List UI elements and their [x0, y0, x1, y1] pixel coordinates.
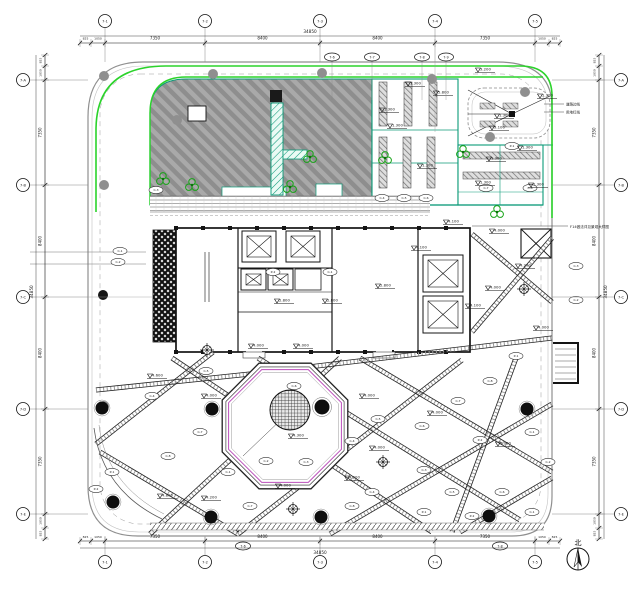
axis-bubble-label: 7-C [618, 295, 625, 299]
spot-level-value: 4.100 [448, 219, 459, 224]
dim-value: 825 [593, 531, 597, 537]
axis-bubble-label: 7-3 [317, 19, 323, 23]
gray-dot [99, 71, 109, 81]
spot-level-value: 4.000 [280, 483, 291, 488]
column-tick [228, 226, 232, 230]
tree-solid [96, 402, 109, 415]
dim-value: 1050 [593, 69, 597, 77]
axis-bubble-label: 7-D [618, 407, 625, 411]
column-tick [444, 226, 448, 230]
plant-tag-code: C-5 [401, 196, 406, 200]
dim-value: 1050 [593, 517, 597, 525]
spot-level-value: 1.300 [410, 81, 421, 86]
spot-level-value: 4.000 [500, 441, 511, 446]
plant-room-block [372, 79, 458, 205]
spot-level-value: 4.000 [374, 445, 385, 450]
tree-solid [206, 403, 219, 416]
spot-level-value: 4.100 [470, 303, 481, 308]
column-tick [282, 226, 286, 230]
dim-value: 825 [39, 58, 43, 64]
plant-tag-code: C-8 [487, 379, 492, 383]
spot-level-value: 2.800 [279, 298, 290, 303]
ramp-bar [480, 103, 495, 109]
plant-tag-code: C-7 [483, 186, 488, 190]
column-tick [201, 226, 205, 230]
dim-value: 7350 [150, 36, 161, 41]
site-plan-drawing: C-1C-2C-3C-4C-5C-6C-7C-8P-1P-2C-1C-2C-3C… [0, 0, 639, 594]
spot-level-value: 3.200 [480, 67, 491, 72]
north-arrow: 北 [567, 539, 589, 570]
plant-tag-code: P-1 [110, 470, 115, 474]
tree-solid [315, 511, 328, 524]
plant-tag-code: C-4 [379, 196, 384, 200]
louver-bar [379, 82, 387, 126]
plant-tag-code: P-2 [470, 514, 475, 518]
plant-tag-code: C-4 [369, 490, 374, 494]
column-tick [228, 350, 232, 354]
plant-tag-code: C-5 [203, 369, 208, 373]
louver-bar [403, 137, 411, 188]
shrub-center [289, 186, 291, 188]
dim-total-top: 34850 [303, 29, 317, 34]
leader-note-text: F14做法详见景观大样图 [570, 224, 609, 229]
gray-dot [485, 132, 495, 142]
sub-axis-label: 7-6 [329, 55, 334, 59]
spot-level-value: 3.100 [494, 125, 505, 130]
escape-stair-niche [553, 343, 578, 383]
tree-solid [107, 496, 120, 509]
dim-value: 1050 [94, 535, 102, 539]
dim-value: 1050 [538, 535, 546, 539]
crosswalk-strip [463, 172, 540, 179]
axis-bubble-label: 7-A [20, 78, 27, 82]
dim-value: 7350 [480, 36, 491, 41]
sub-axis-label: 7-9 [443, 55, 448, 59]
column-tick [255, 226, 259, 230]
plant-tag-code: C-1 [529, 510, 534, 514]
dim-value: 8400 [592, 347, 597, 358]
margin-note-2: 用地红线 [566, 110, 580, 115]
spot-level-value: 1.300 [392, 123, 403, 128]
spot-level-value: 2.800 [327, 298, 338, 303]
plant-tag-code: C-3 [421, 468, 426, 472]
dim-value: 1050 [94, 37, 102, 41]
spot-level-value: 2.800 [380, 283, 391, 288]
dim-value: 1050 [39, 517, 43, 525]
spot-level-value: 4.000 [298, 343, 309, 348]
shrub-center [462, 151, 464, 153]
axis-bubble-label: 7-A [618, 78, 625, 82]
column-tick [417, 226, 421, 230]
louver-bar [404, 82, 412, 126]
plant-tag-code: C-4 [349, 439, 354, 443]
spot-level-value: 4.000 [206, 393, 217, 398]
tree-solid [205, 511, 218, 524]
feature-tree-grate [270, 390, 310, 430]
plant-tag-code: C-8 [349, 504, 354, 508]
axis-bubble-label: 7-B [20, 183, 26, 187]
axis-bubble-label: 7-B [618, 183, 624, 187]
dim-value: 8400 [372, 534, 383, 539]
dim-total-right: 34850 [603, 285, 608, 299]
plant-tag-code: C-6 [499, 490, 504, 494]
tree-solid [315, 400, 330, 415]
spot-level-value: 4.000 [432, 410, 443, 415]
stair-hatch-band [153, 230, 176, 342]
plant-tag-code: C-6 [291, 384, 296, 388]
margin-note-1: 道路边线 [566, 102, 580, 107]
dim-value: 1050 [39, 69, 43, 77]
plant-tag-code: C-2 [545, 460, 550, 464]
spot-level-value: 4.200 [349, 475, 360, 480]
core-room [295, 269, 321, 290]
column-tick [336, 226, 340, 230]
spot-level-value: 4.000 [364, 393, 375, 398]
dim-total-left: 34850 [29, 285, 34, 299]
dim-total-bottom: 34850 [313, 550, 327, 555]
gray-dot [172, 115, 182, 125]
plant-tag-code: C-1 [117, 249, 122, 253]
plant-tag-code: P-2 [94, 487, 99, 491]
column-tick [309, 350, 313, 354]
gray-dot [317, 68, 327, 78]
axis-bubble-label: 7-5 [532, 560, 538, 564]
spot-level-value: 4.000 [490, 285, 501, 290]
link-stub-hatch [283, 150, 307, 159]
spot-level-value: 4.200 [520, 263, 531, 268]
plant-tag-code: P-1 [514, 354, 519, 358]
dim-value: 825 [552, 37, 558, 41]
plant-tag-code: C-3 [573, 264, 578, 268]
plant-tag-code: C-5 [449, 490, 454, 494]
spot-level-value: 1.300 [522, 145, 533, 150]
site-plan-canvas: C-1C-2C-3C-4C-5C-6C-7C-8P-1P-2C-1C-2C-3C… [0, 0, 639, 594]
louver-bar [429, 82, 437, 126]
spot-level-value: 1.300 [480, 180, 491, 185]
plant-tag-code: C-2 [263, 459, 268, 463]
entry-steps [243, 352, 265, 358]
dim-value: 825 [39, 531, 43, 537]
tree-solid [483, 510, 496, 523]
shrub-center [191, 184, 193, 186]
spot-level-value: 4.000 [494, 228, 505, 233]
plant-tag-code: C-6 [423, 196, 428, 200]
axis-bubble-label: 7-2 [202, 560, 208, 564]
column-tick [174, 226, 178, 230]
spot-level-value: 1.300 [542, 93, 553, 98]
plant-tag-code: P-1 [510, 144, 515, 148]
black-dot [98, 290, 108, 300]
axis-bubble-label: 7-D [20, 407, 27, 411]
axis-bubble-label: 7-E [618, 512, 625, 516]
tree-solid [521, 403, 534, 416]
plant-tag-code: C-2 [573, 298, 578, 302]
plant-tag-code: C-6 [419, 424, 424, 428]
column-tick [282, 350, 286, 354]
plant-tag-code: C-2 [115, 260, 120, 264]
dim-value: 1050 [538, 37, 546, 41]
dim-value: 825 [593, 58, 597, 64]
dim-value: 7350 [150, 534, 161, 539]
sub-axis-label: 7-7 [369, 55, 374, 59]
gray-dot [208, 69, 218, 79]
right-room-block [458, 145, 543, 205]
gray-dot [427, 74, 437, 84]
column-tick [390, 226, 394, 230]
spot-level-value: 4.000 [538, 325, 549, 330]
plant-tag-code: C-7 [247, 504, 252, 508]
spot-level-value: 4.200 [206, 495, 217, 500]
spot-level-value: 1.300 [499, 113, 510, 118]
shaft-solid [270, 90, 282, 102]
link-bridge-hatch [271, 103, 283, 195]
spot-level-value: 1.300 [384, 107, 395, 112]
axis-bubble-label: 7-2 [202, 19, 208, 23]
spot-level-value: 4.100 [416, 245, 427, 250]
north-label: 北 [575, 539, 582, 547]
axis-bubble-label: 7-3 [317, 560, 323, 564]
plant-tag-code: C-4 [149, 394, 154, 398]
column-tick [363, 350, 367, 354]
column-solid [509, 111, 515, 117]
gray-dot [99, 180, 109, 190]
plant-tag-code: P-1 [422, 510, 427, 514]
dim-value: 7350 [592, 456, 597, 467]
plant-tag-code: C-3 [153, 188, 158, 192]
column-tick [363, 226, 367, 230]
axis-bubble-label: 7-1 [102, 560, 108, 564]
shrub-center [384, 157, 386, 159]
gray-dot [520, 87, 530, 97]
plant-tag-code: C-1 [529, 430, 534, 434]
spot-level-value: 5.800 [438, 90, 449, 95]
spot-level-value: 1.300 [491, 156, 502, 161]
shrub-center [162, 178, 164, 180]
dim-value: 7350 [38, 456, 43, 467]
plant-tag-code: C-7 [455, 399, 460, 403]
plant-tag-code: P-2 [271, 270, 276, 274]
dim-value: 7350 [480, 534, 491, 539]
column-tick [309, 226, 313, 230]
spot-level-value: 4.300 [293, 433, 304, 438]
dim-value: 8400 [38, 235, 43, 246]
shrub-center [309, 156, 311, 158]
spot-level-value: 4.800 [162, 493, 173, 498]
dim-value: 825 [552, 535, 558, 539]
plant-tag-code: C-1 [225, 470, 230, 474]
spot-level-value: 1.300 [422, 163, 433, 168]
spot-level-value: 4.600 [152, 373, 163, 378]
dim-value: 8400 [257, 36, 268, 41]
skylight [188, 106, 206, 121]
axis-bubble-label: 7-1 [102, 19, 108, 23]
ramp-bar [503, 121, 518, 127]
dim-value: 8400 [38, 347, 43, 358]
plant-tag-code: P-2 [478, 438, 483, 442]
plant-tag-code: C-8 [165, 454, 170, 458]
dim-value: 8400 [257, 534, 268, 539]
dim-value: 825 [83, 37, 89, 41]
dim-value: 8400 [372, 36, 383, 41]
axis-bubble-label: 7-5 [532, 19, 538, 23]
dim-value: 7350 [38, 127, 43, 138]
dim-value: 825 [83, 535, 89, 539]
axis-bubble-label: 7-C [20, 295, 27, 299]
spot-level-value: 4.000 [253, 343, 264, 348]
spot-level-value: 1.300 [533, 182, 544, 187]
dim-value: 7350 [592, 127, 597, 138]
plant-tag-code: C-1 [327, 270, 332, 274]
axis-bubble-label: 7-4 [432, 560, 439, 564]
axis-bubble-label: 7-E [20, 512, 27, 516]
dim-value: 8400 [592, 235, 597, 246]
octagon-feature [222, 363, 348, 489]
plant-tag-code: C-3 [303, 460, 308, 464]
shrub-center [496, 211, 498, 213]
column-tick [174, 350, 178, 354]
plant-tag-code: C-7 [197, 430, 202, 434]
column-tick [336, 350, 340, 354]
plant-tag-code: C-5 [375, 417, 380, 421]
sub-axis-label: 7-8 [419, 55, 424, 59]
ramp-bar [503, 103, 518, 109]
axis-bubble-label: 7-4 [432, 19, 439, 23]
plant-tag-code: C-8 [527, 186, 532, 190]
